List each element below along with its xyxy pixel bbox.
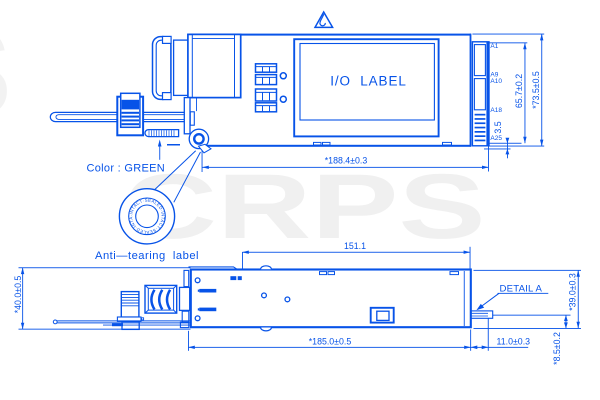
svg-text:*40.0±0.5: *40.0±0.5 [13, 276, 23, 314]
svg-text:*188.4±0.3: *188.4±0.3 [325, 156, 368, 166]
svg-text:65.7±0.2: 65.7±0.2 [514, 74, 524, 108]
svg-text:11.0±0.3: 11.0±0.3 [497, 336, 531, 346]
svg-text:Anti—tearing label: Anti—tearing label [95, 250, 199, 262]
svg-text:S: S [0, 5, 12, 143]
svg-text:I/O LABEL: I/O LABEL [330, 74, 407, 89]
svg-text:*185.0±0.5: *185.0±0.5 [309, 336, 352, 346]
svg-text:A10: A10 [490, 78, 502, 85]
svg-text:A18: A18 [490, 107, 502, 114]
svg-text:A1: A1 [490, 43, 498, 50]
svg-text:Color : GREEN: Color : GREEN [87, 162, 165, 174]
svg-text:*73.5±0.5: *73.5±0.5 [531, 71, 541, 109]
svg-text:DETAIL A: DETAIL A [500, 283, 543, 294]
svg-text:*8.5±0.2: *8.5±0.2 [552, 332, 562, 365]
svg-text:CRPS: CRPS [123, 155, 486, 258]
svg-text:151.1: 151.1 [344, 241, 366, 251]
svg-text:*39.0±0.3: *39.0±0.3 [567, 273, 577, 311]
svg-text:A25: A25 [490, 135, 502, 142]
svg-text:3.5: 3.5 [493, 121, 503, 133]
